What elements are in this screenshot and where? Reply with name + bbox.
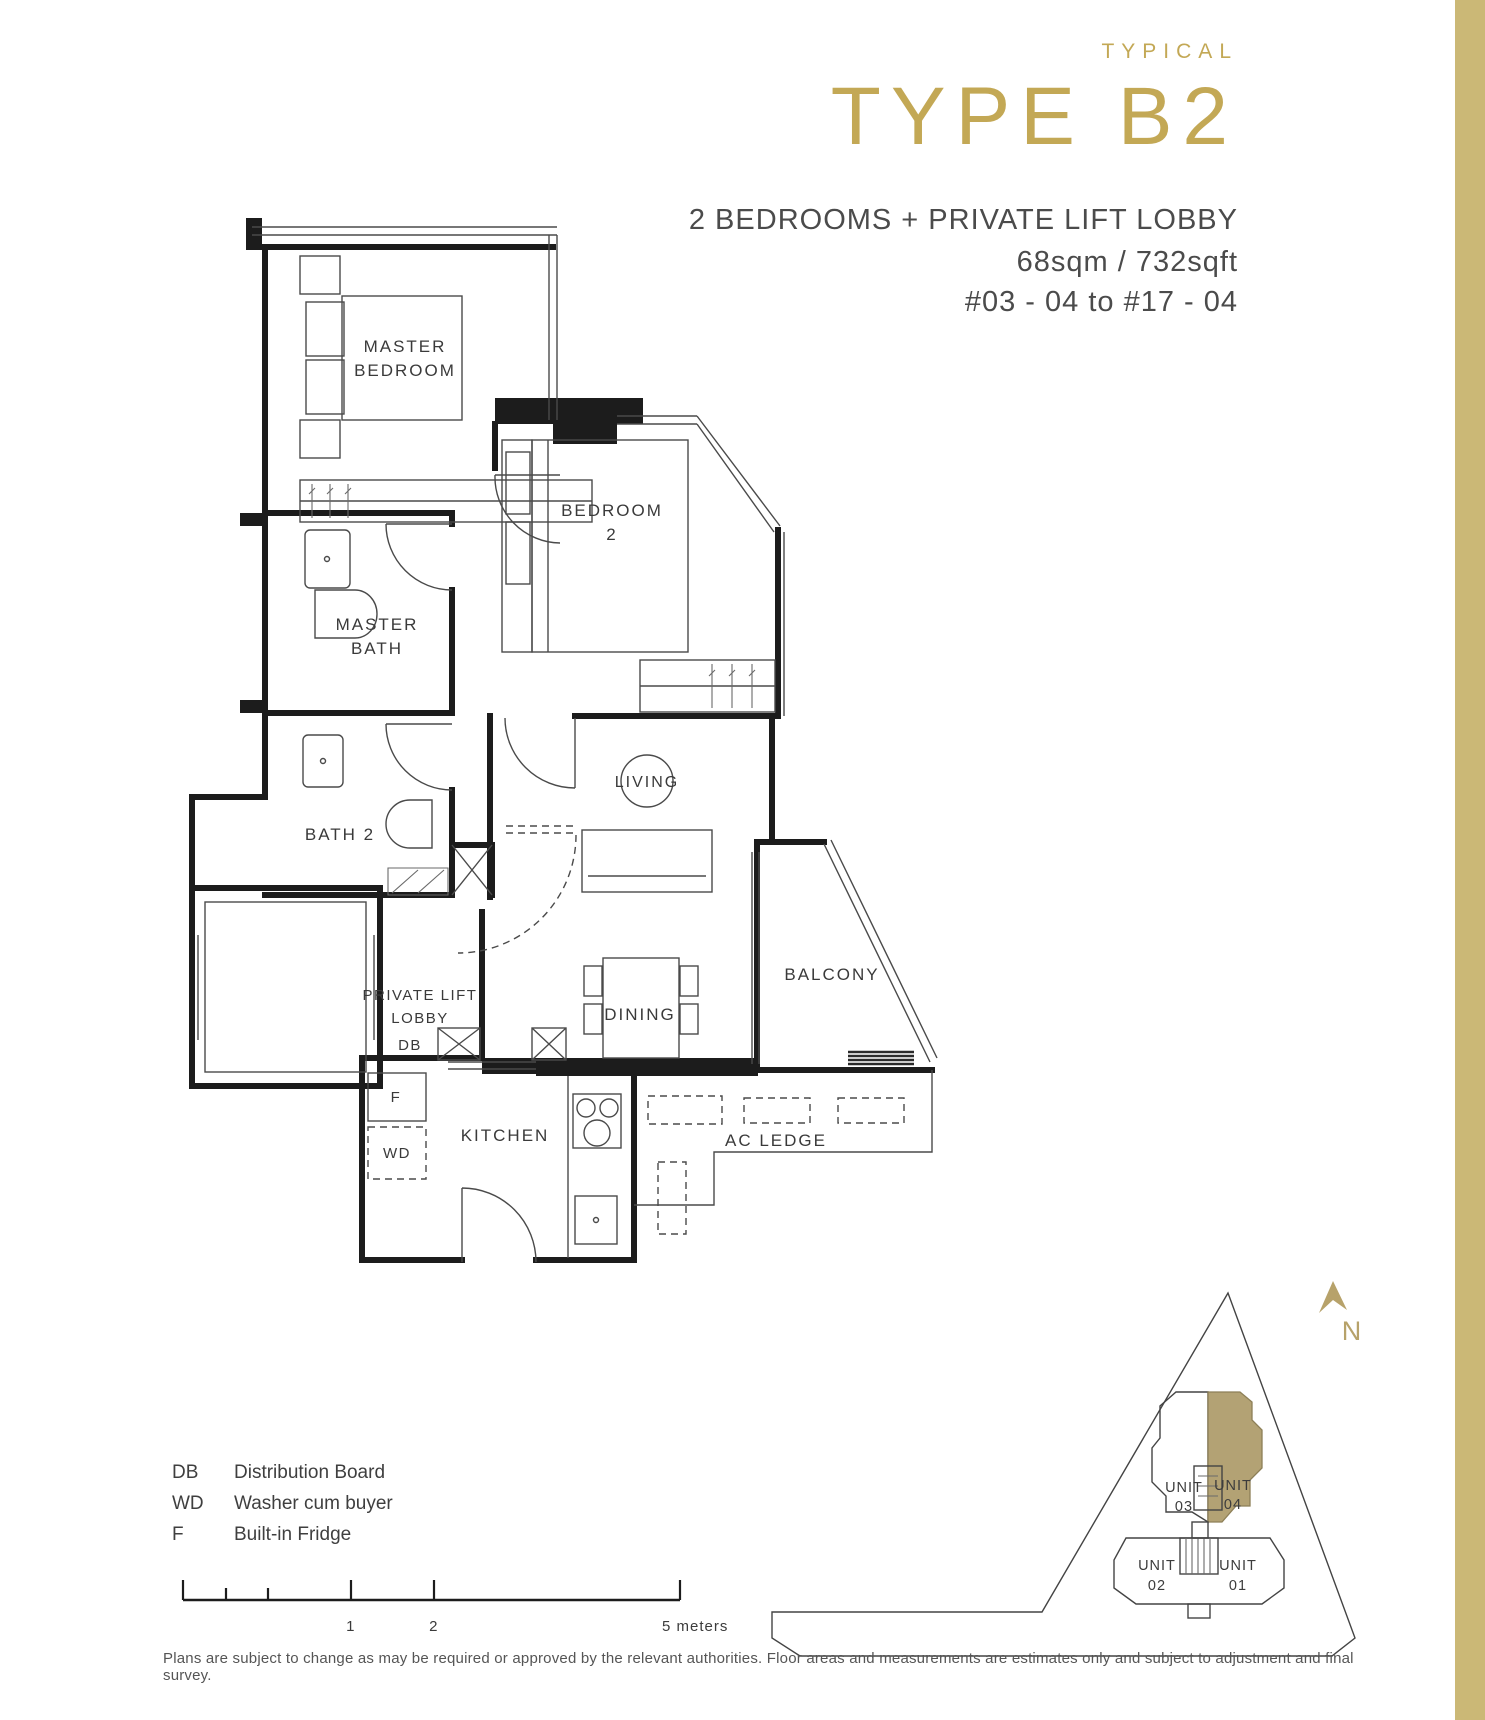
master-bed-icon [300,256,462,458]
bath2-fixtures [303,735,492,895]
unit03-number: 03 [1175,1499,1193,1515]
lift-lobby-label-2: LOBBY [391,1010,449,1027]
legend-row-db: DB Distribution Board [172,1462,393,1484]
bedroom2-bed-icon [502,440,688,652]
north-arrow-icon: N [1319,1281,1362,1346]
unit04-label: UNIT [1214,1478,1252,1494]
fridge-label: F [391,1089,402,1106]
legend-row-wd: WD Washer cum buyer [172,1493,393,1515]
brochure-page: TYPICAL TYPE B2 2 BEDROOMS + PRIVATE LIF… [0,0,1485,1720]
legend-abbr-wd: WD [172,1493,234,1515]
unit01-label: UNIT [1219,1558,1257,1574]
bath2-label: BATH 2 [305,825,375,844]
unit04-number: 04 [1224,1497,1242,1513]
bedroom2-wardrobe-icon [640,660,775,712]
planter-icon [848,1052,914,1064]
legend-label-db: Distribution Board [234,1462,385,1484]
master-bath-label-2: BATH [351,639,403,658]
unit02-label: UNIT [1138,1558,1176,1574]
north-label: N [1342,1316,1363,1346]
ac-ledge-label: AC LEDGE [725,1131,827,1150]
master-bath-label: MASTER [336,615,419,634]
bedroom2-label-2: 2 [606,525,617,544]
scale-1m-label: 1 [346,1618,356,1635]
balcony-label: BALCONY [784,965,879,984]
master-bedroom-label-2: BEDROOM [354,361,456,380]
kitchen-label: KITCHEN [461,1126,550,1145]
dining-label: DINING [604,1005,676,1024]
bedroom2-label: BEDROOM [561,501,663,520]
disclaimer-text: Plans are subject to change as may be re… [163,1650,1393,1684]
site-plan: UNIT 03 UNIT 04 UNIT 02 UNIT 01 N [772,1281,1362,1656]
unit02-number: 02 [1148,1578,1166,1594]
legend-abbr-f: F [172,1524,234,1546]
legend: DB Distribution Board WD Washer cum buye… [172,1462,393,1555]
scale-bar: 1 2 5 meters [183,1580,728,1635]
master-bedroom-label: MASTER [364,337,447,356]
ac-ledge-outline [634,1070,932,1234]
db-label: DB [398,1037,422,1054]
legend-row-f: F Built-in Fridge [172,1524,393,1546]
scale-5m-label: 5 meters [662,1618,728,1635]
scale-2m-label: 2 [429,1618,439,1635]
lift-lobby-label: PRIVATE LIFT [363,987,478,1004]
sofa-icon [582,830,712,892]
washer-label: WD [383,1145,411,1162]
unit01-number: 01 [1229,1578,1247,1594]
legend-abbr-db: DB [172,1462,234,1484]
lift-car-icon [198,902,374,1072]
legend-label-wd: Washer cum buyer [234,1493,393,1515]
kitchen-counter-icons [568,1076,621,1258]
living-label: LIVING [615,774,679,791]
unit03-label: UNIT [1165,1480,1203,1496]
legend-label-f: Built-in Fridge [234,1524,351,1546]
